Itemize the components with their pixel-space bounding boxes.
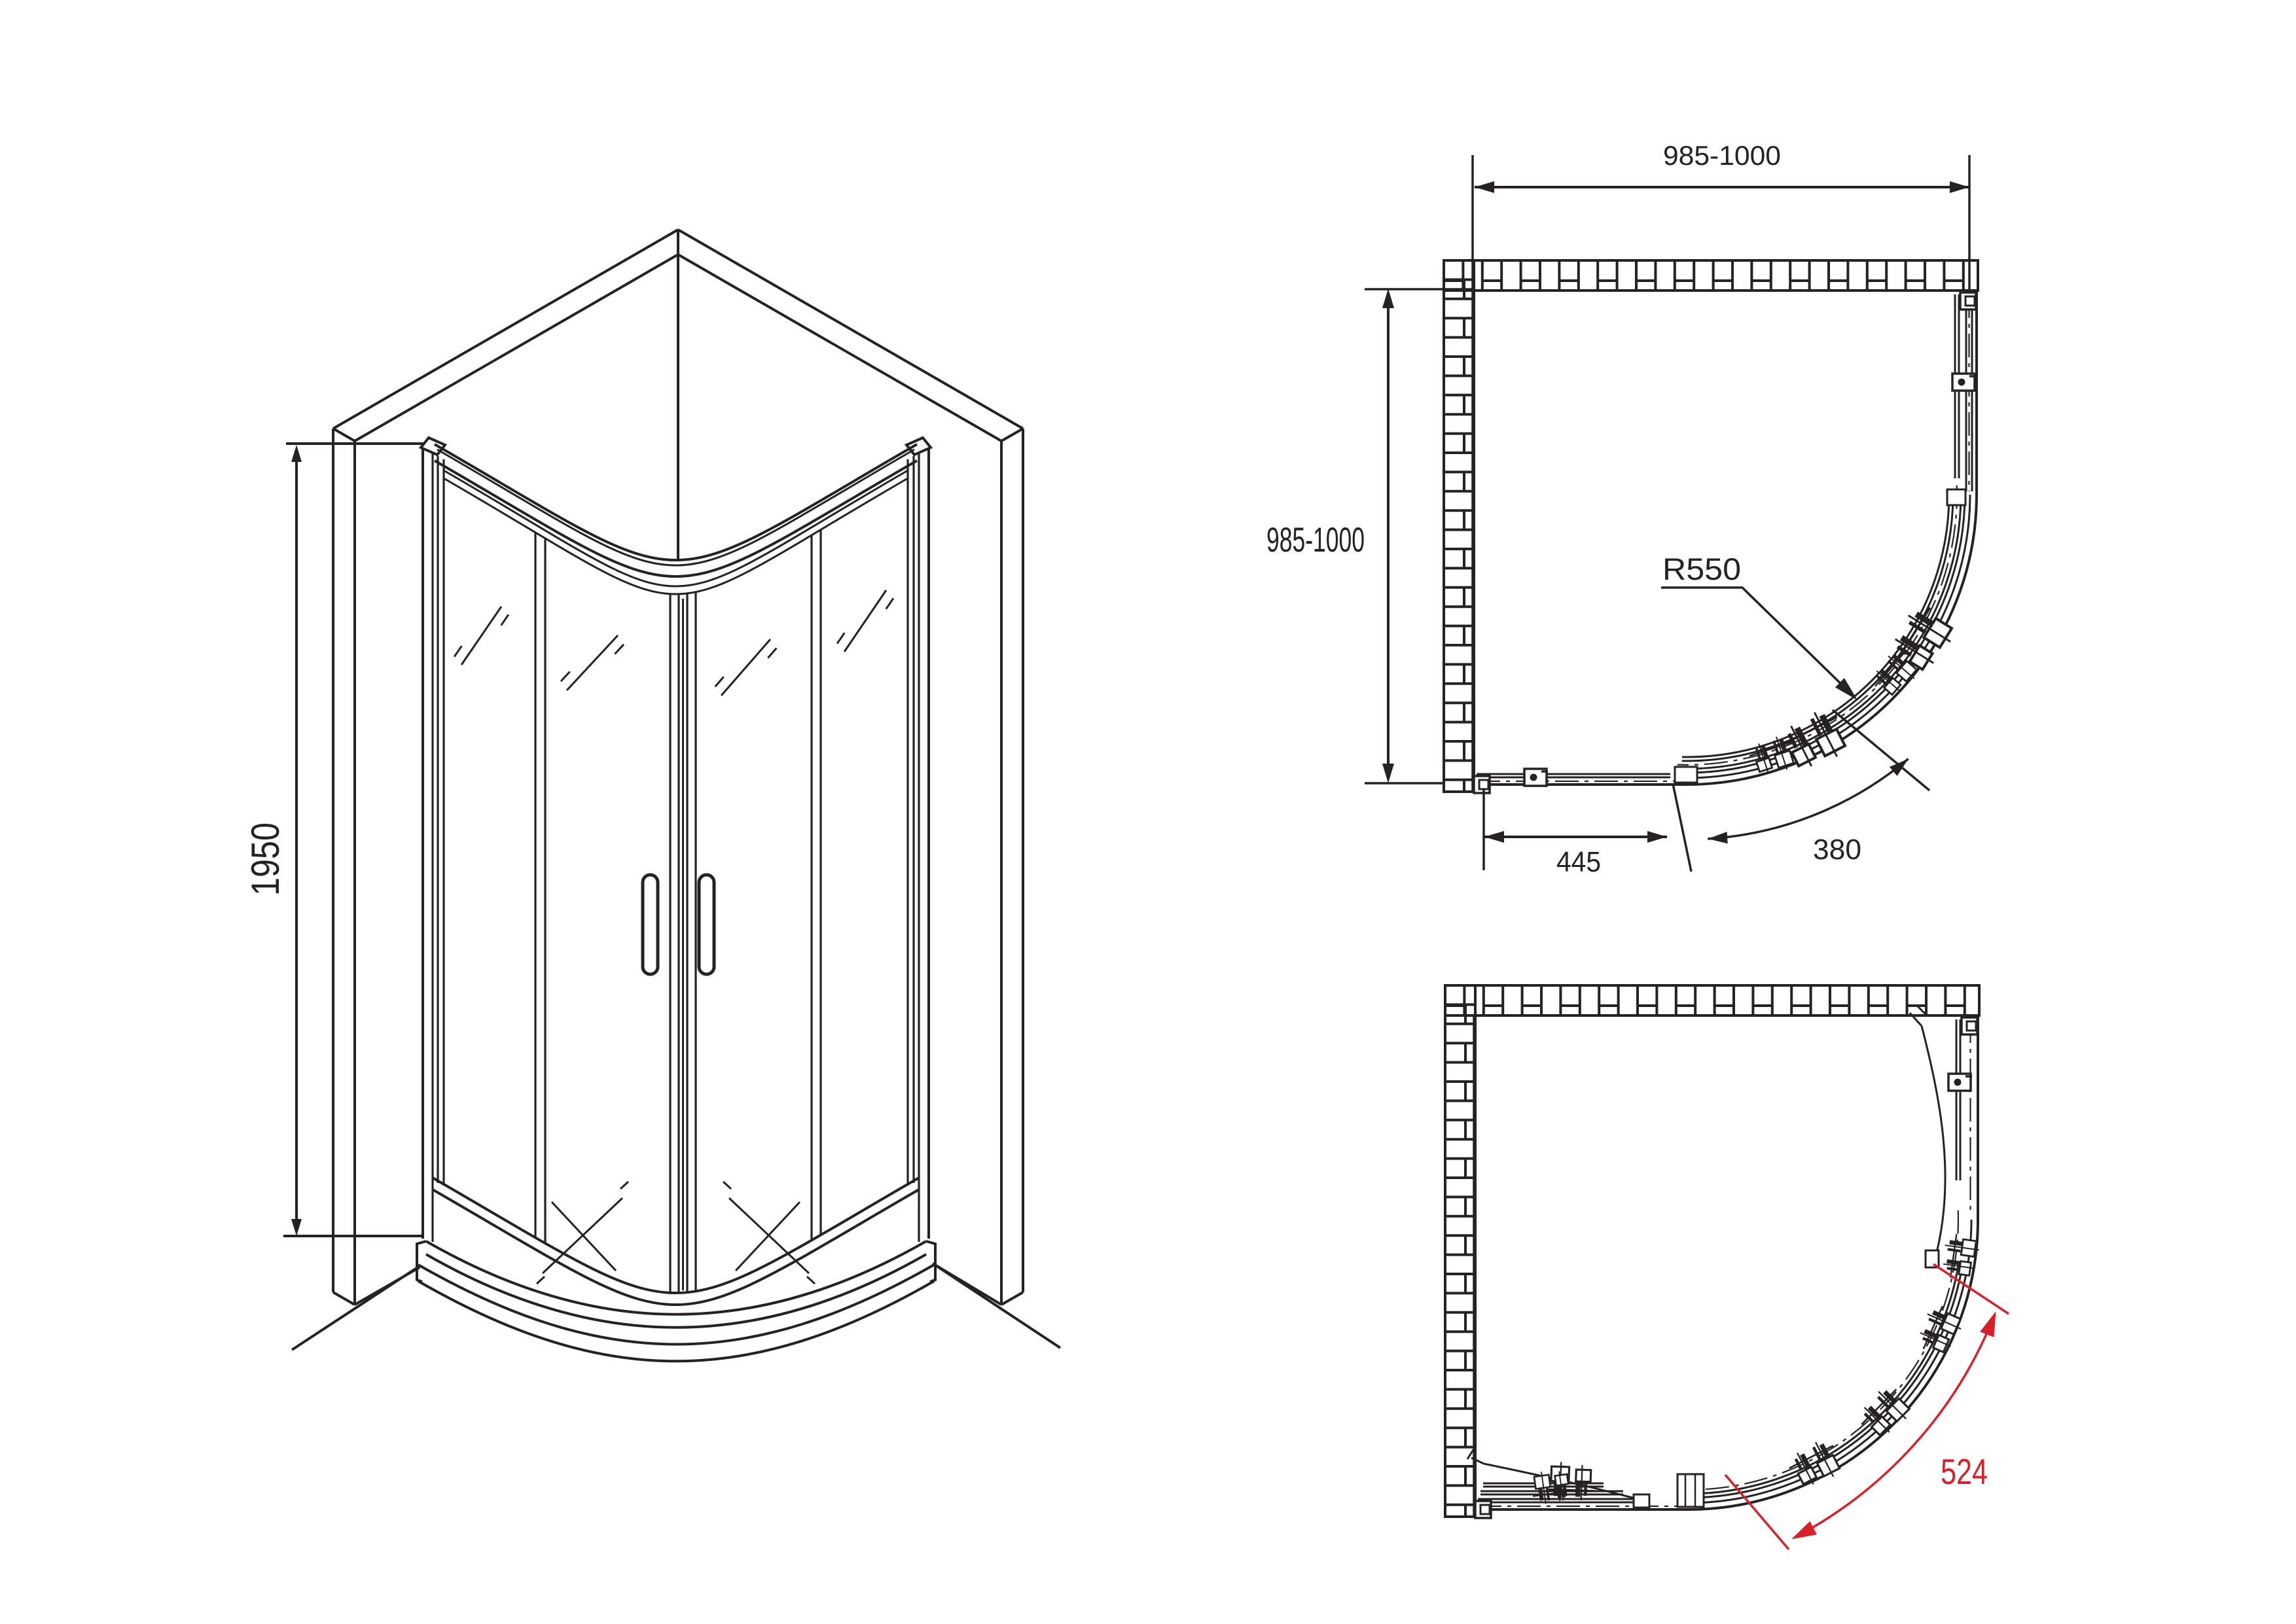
svg-text:524: 524 bbox=[1941, 1451, 1988, 1492]
svg-text:1950: 1950 bbox=[243, 822, 287, 896]
svg-text:445: 445 bbox=[1556, 846, 1601, 878]
svg-text:985-1000: 985-1000 bbox=[1663, 140, 1781, 171]
svg-text:985-1000: 985-1000 bbox=[1266, 521, 1365, 559]
svg-text:R550: R550 bbox=[1662, 552, 1741, 586]
svg-text:380: 380 bbox=[1813, 834, 1861, 866]
